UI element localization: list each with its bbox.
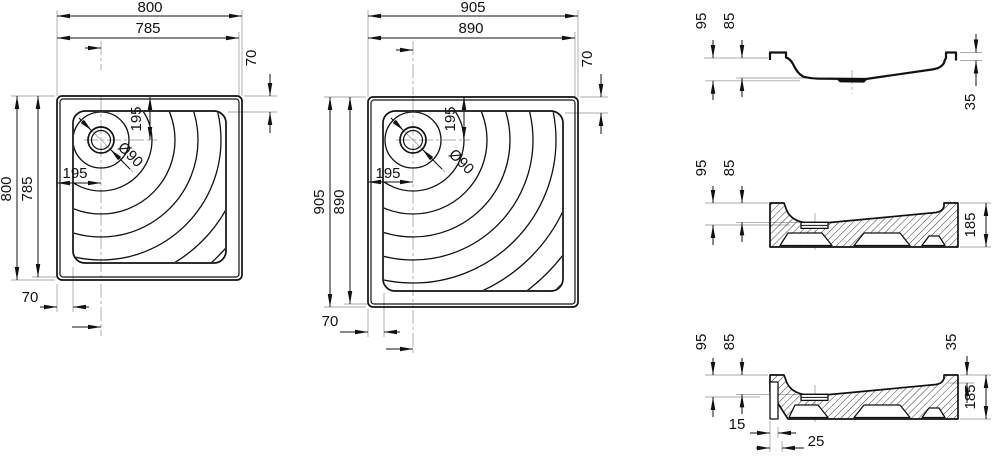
technical-drawing-sheet: 800 785 800 785 70 195 195 Ø90 70 bbox=[0, 0, 1000, 456]
tray-large-outer-edge bbox=[368, 97, 578, 307]
section-base: 95 85 185 bbox=[693, 160, 991, 253]
dim-tray-large-outer-height: 905 bbox=[311, 189, 328, 214]
tray-small-plan: 800 785 800 785 70 195 195 Ø90 70 bbox=[0, 0, 284, 336]
tray-large-plan: 905 890 905 890 70 195 195 Ø90 70 bbox=[206, 0, 620, 356]
dim-tray-large-inner-height: 890 bbox=[331, 189, 348, 214]
section-acrylic-shell: 95 85 35 bbox=[693, 13, 982, 111]
section-acrylic-profile bbox=[770, 53, 956, 80]
section-acrylic-dimension-lines bbox=[713, 34, 976, 100]
shower-tray-technical-drawing: 800 785 800 785 70 195 195 Ø90 70 bbox=[0, 0, 1000, 456]
dim-tray-large-drain-diameter: Ø90 bbox=[445, 146, 477, 178]
section-flange-panel-strip bbox=[770, 382, 778, 419]
dim-tray-small-inner-width: 785 bbox=[135, 20, 160, 37]
dim-base-height-total: 95 bbox=[693, 160, 710, 177]
dim-tray-large-rim-right: 70 bbox=[579, 51, 596, 68]
dim-tray-large-outer-width: 905 bbox=[460, 0, 485, 16]
dim-flange-offset: 15 bbox=[729, 416, 746, 433]
dim-tray-small-rim-bottom: 70 bbox=[22, 289, 39, 306]
section-acrylic-extension-lines bbox=[704, 53, 982, 95]
dim-tray-small-drain-left: 195 bbox=[62, 165, 87, 182]
dim-tray-large-inner-width: 890 bbox=[458, 20, 483, 37]
dim-tray-large-drain-top: 195 bbox=[442, 106, 459, 131]
dim-acrylic-height-total: 95 bbox=[693, 13, 710, 30]
dim-tray-large-drain-left: 195 bbox=[375, 165, 400, 182]
dim-tray-small-drain-diameter: Ø90 bbox=[114, 139, 146, 171]
dim-tray-small-rim-right: 70 bbox=[243, 50, 260, 67]
section-flange-foot-cutout bbox=[854, 405, 910, 418]
dim-tray-small-outer-height: 800 bbox=[0, 176, 15, 201]
section-base-foot-cutout bbox=[854, 233, 910, 246]
dim-base-height-inner: 85 bbox=[721, 160, 738, 177]
dim-tray-large-rim-bottom: 70 bbox=[322, 313, 339, 330]
dim-tray-small-outer-width: 800 bbox=[137, 0, 162, 16]
tray-large-inner-edge bbox=[371, 100, 575, 304]
dim-flange-height-total: 95 bbox=[693, 334, 710, 351]
section-base-foot-cutout bbox=[780, 233, 832, 246]
tray-large-basin-edge bbox=[383, 111, 563, 291]
section-base-flange: 95 85 35 185 15 25 bbox=[693, 334, 991, 452]
dim-flange-height-overall: 185 bbox=[962, 384, 979, 409]
dim-acrylic-height-inner: 85 bbox=[721, 13, 738, 30]
dim-base-height-overall: 185 bbox=[962, 212, 979, 237]
dim-tray-small-drain-top: 195 bbox=[128, 106, 145, 131]
dim-flange-edge-height: 35 bbox=[943, 334, 960, 351]
dim-tray-small-inner-height: 785 bbox=[19, 176, 36, 201]
section-acrylic-drain-flange bbox=[836, 79, 868, 83]
dim-flange-height-inner: 85 bbox=[721, 334, 738, 351]
dim-flange-width: 25 bbox=[808, 433, 825, 450]
dim-acrylic-edge-height: 35 bbox=[962, 94, 979, 111]
